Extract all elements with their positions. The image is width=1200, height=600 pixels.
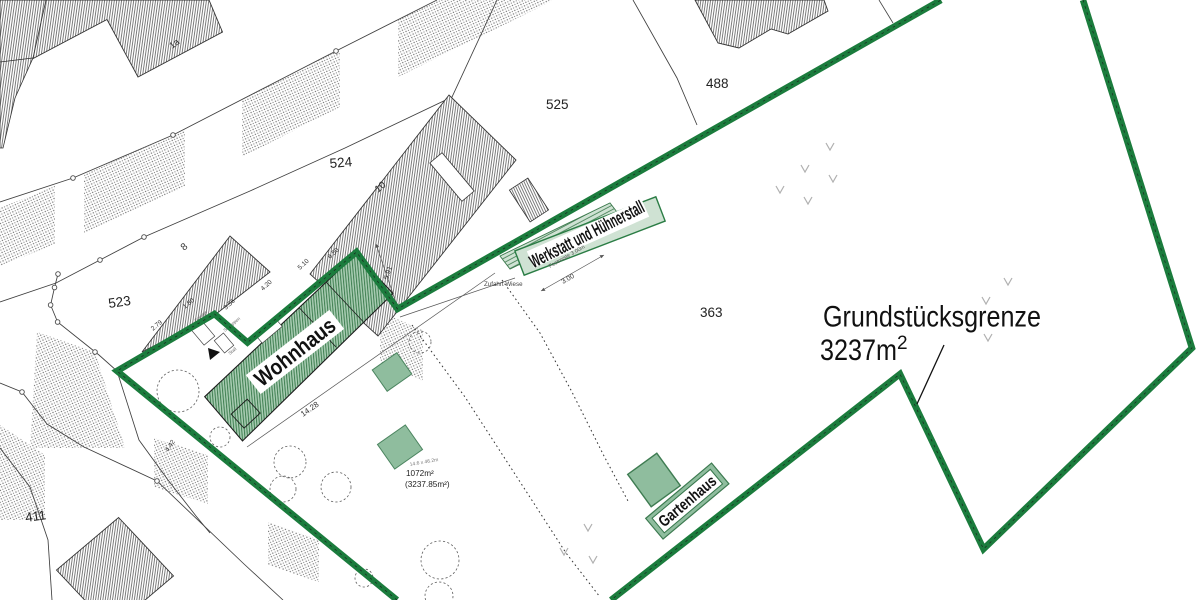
svg-text:1072m²: 1072m² xyxy=(406,469,434,478)
svg-text:3237m2: 3237m2 xyxy=(820,333,908,367)
svg-text:488: 488 xyxy=(706,76,729,91)
svg-text:525: 525 xyxy=(546,97,569,112)
svg-text:(3237.85m²): (3237.85m²) xyxy=(405,480,450,489)
svg-text:Grundstücksgrenze: Grundstücksgrenze xyxy=(823,301,1041,334)
svg-text:363: 363 xyxy=(700,305,723,320)
svg-text:Zufahrt Wiese: Zufahrt Wiese xyxy=(484,281,523,288)
svg-text:411: 411 xyxy=(24,507,47,525)
svg-text:523: 523 xyxy=(107,293,131,311)
svg-text:524: 524 xyxy=(329,154,353,171)
